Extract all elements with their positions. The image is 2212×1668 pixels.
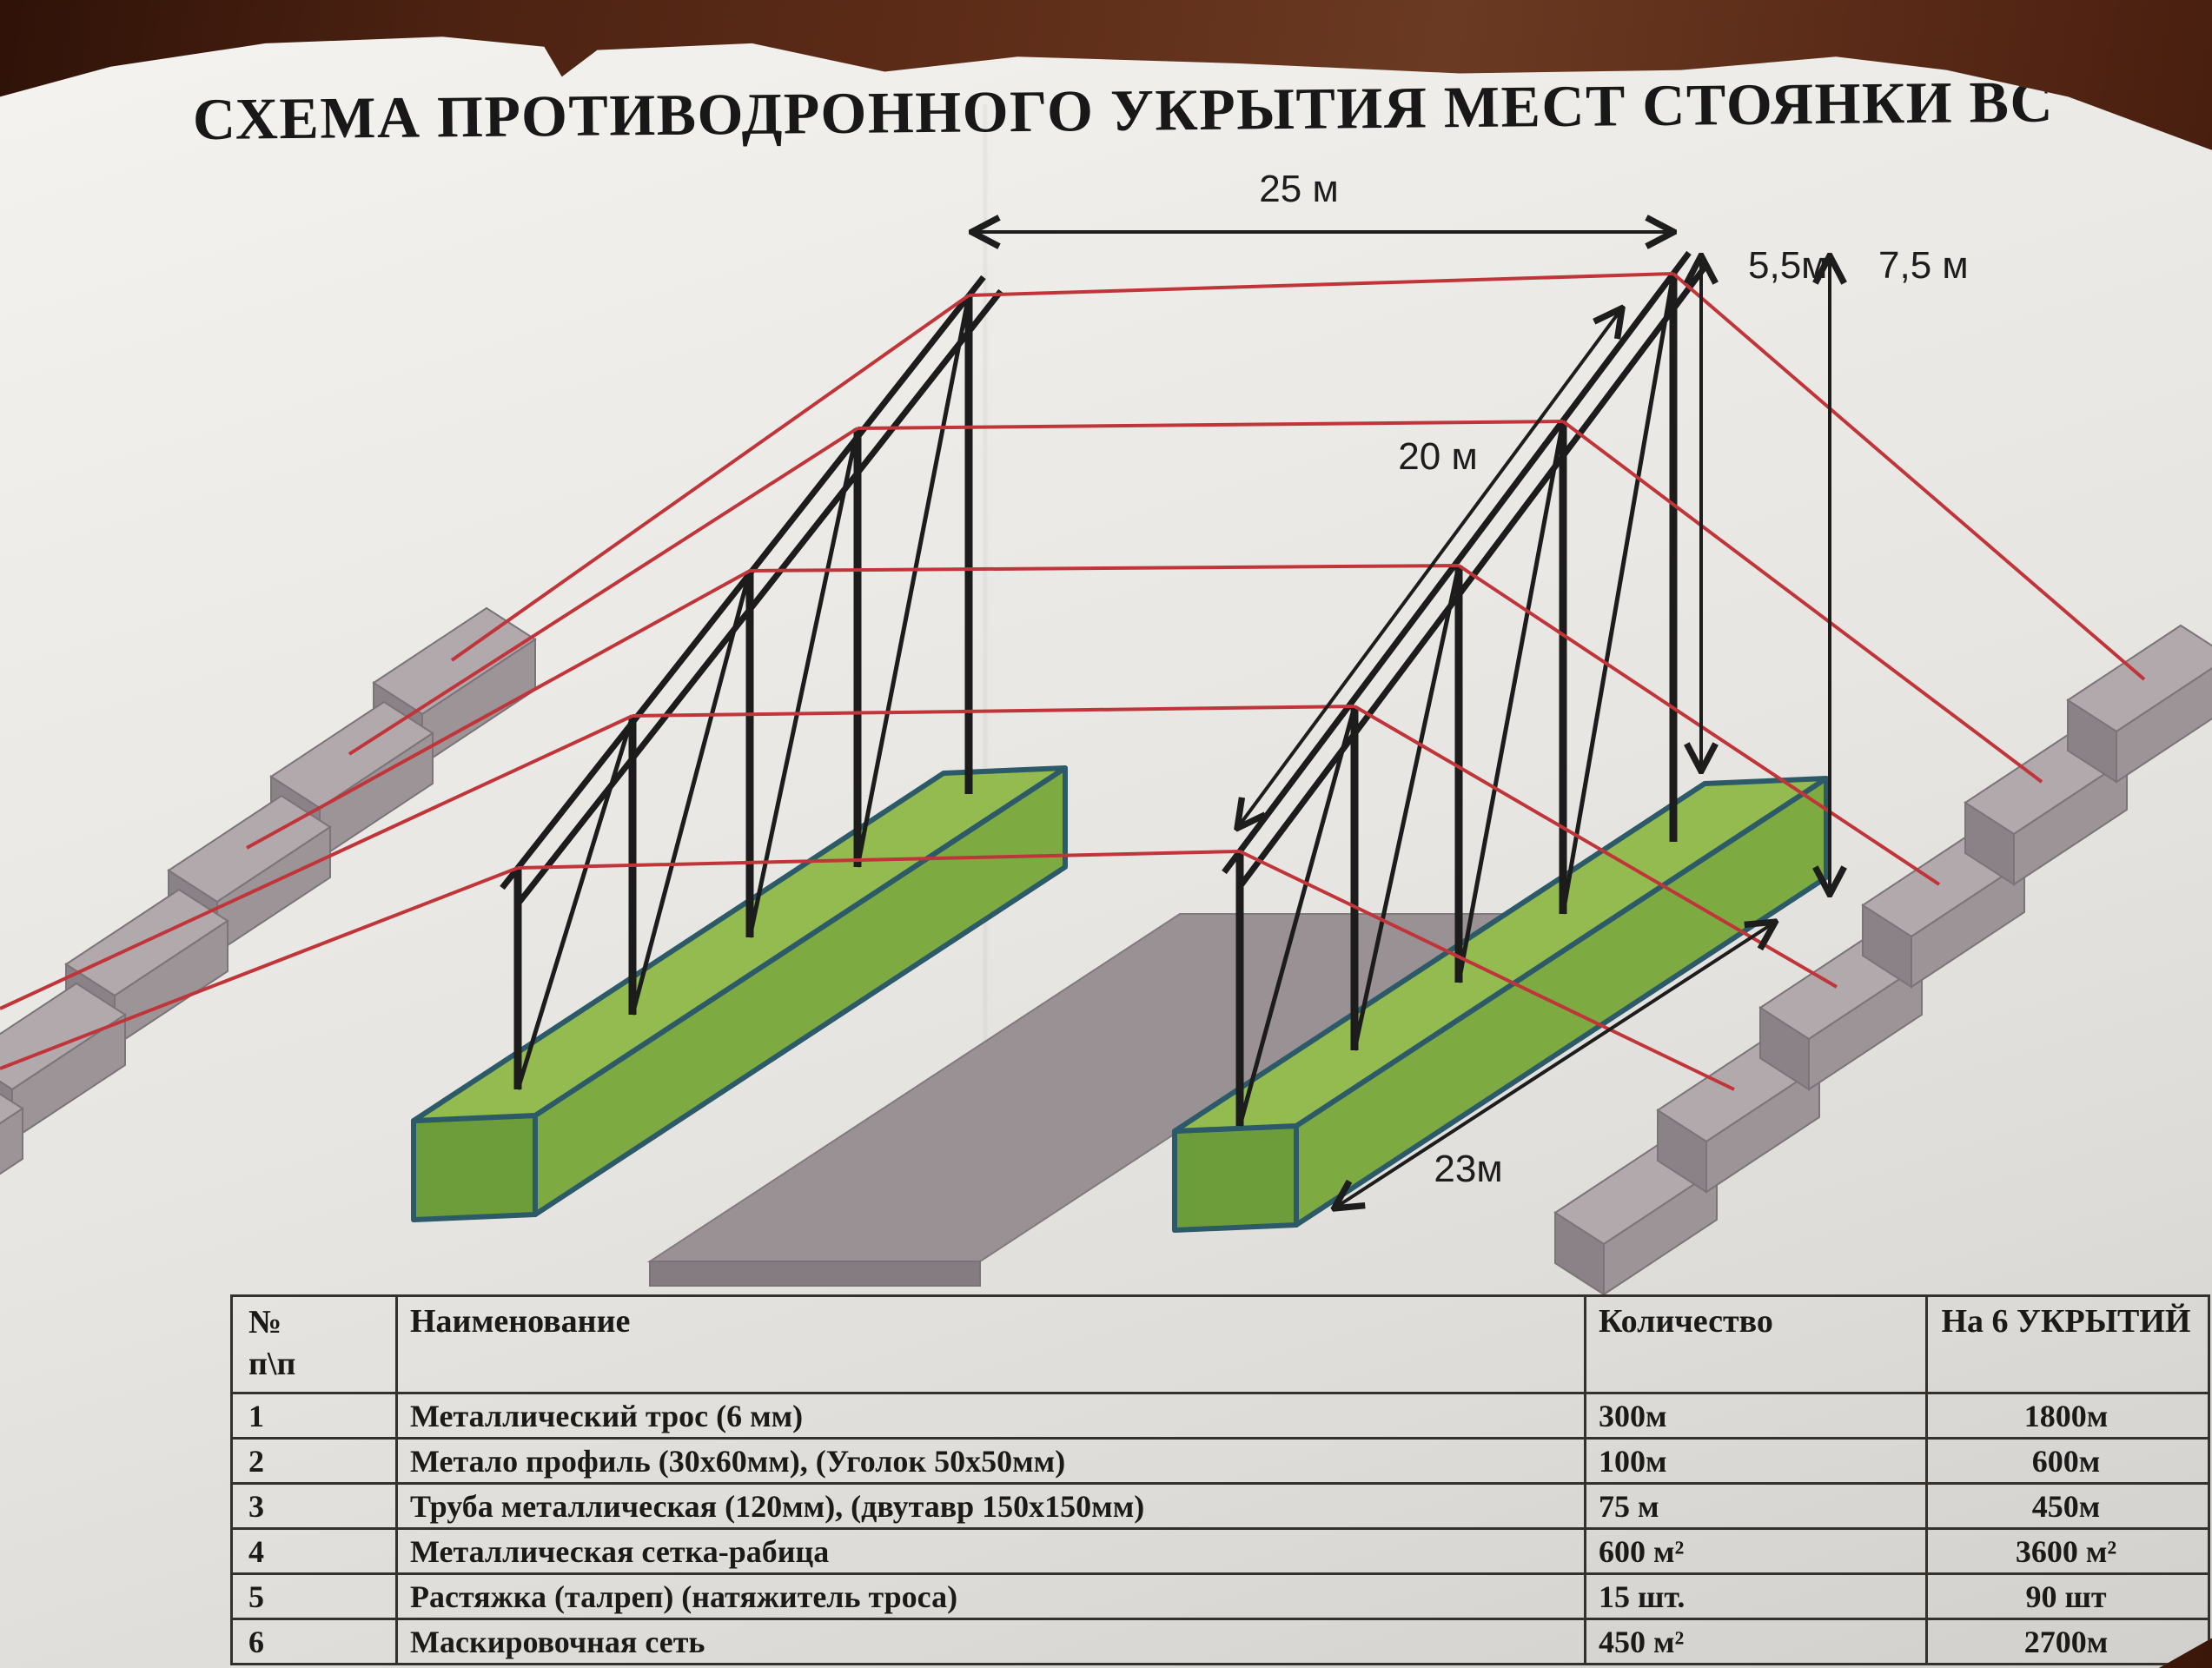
cell-qty: 75 м [1586, 1484, 1927, 1529]
cell-num: 2 [232, 1439, 397, 1484]
cell-qty: 600 м² [1586, 1529, 1927, 1574]
cell-name: Металлический трос (6 мм) [397, 1393, 1586, 1439]
col-header-name: Наименование [397, 1296, 1586, 1393]
dimension-label-7-5m: 7,5 м [1878, 244, 1969, 287]
cell-name: Труба металлическая (120мм), (двутавр 15… [397, 1484, 1586, 1529]
paper-sheet: СХЕМА ПРОТИВОДРОННОГО УКРЫТИЯ МЕСТ СТОЯН… [0, 0, 2212, 1668]
table-row: 2 Метало профиль (30х60мм), (Уголок 50х5… [232, 1439, 2209, 1484]
cell-qty: 100м [1586, 1439, 1927, 1484]
cell-total: 90 шт [1927, 1574, 2209, 1619]
cell-total: 2700м [1927, 1619, 2209, 1665]
col-header-num: № п\п [232, 1296, 397, 1393]
photo-of-diagram: { "title": "СХЕМА ПРОТИВОДРОННОГО УКРЫТИ… [0, 0, 2212, 1668]
dimension-label-5-5m: 5,5м [1748, 244, 1827, 287]
dimension-label-20m: 20 м [1398, 435, 1477, 478]
cell-name: Металлическая сетка-рабица [397, 1529, 1586, 1574]
cell-num: 4 [232, 1529, 397, 1574]
dimension-total-height-7-5m: 7,5 м [1830, 244, 1969, 893]
cell-name: Растяжка (талреп) (натяжитель троса) [397, 1574, 1586, 1619]
table-row: 1 Металлический трос (6 мм) 300м 1800м [232, 1393, 2209, 1439]
cell-total: 600м [1927, 1439, 2209, 1484]
cell-total: 3600 м² [1927, 1529, 2209, 1574]
table-row: 5 Растяжка (талреп) (натяжитель троса) 1… [232, 1574, 2209, 1619]
col-header-qty: Количество [1586, 1296, 1927, 1393]
dimension-pole-height-5-5m: 5,5м [1701, 244, 1827, 770]
cell-qty: 450 м² [1586, 1619, 1927, 1665]
table-row: 6 Маскировочная сеть 450 м² 2700м [232, 1619, 2209, 1665]
concrete-block [2068, 625, 2212, 782]
cell-num: 5 [232, 1574, 397, 1619]
cell-num: 1 [232, 1393, 397, 1439]
cell-qty: 15 шт. [1586, 1574, 1927, 1619]
cell-qty: 300м [1586, 1393, 1927, 1439]
cell-total: 1800м [1927, 1393, 2209, 1439]
dimension-label-23m: 23м [1434, 1148, 1502, 1190]
table-row: 4 Металлическая сетка-рабица 600 м² 3600… [232, 1529, 2209, 1574]
cell-name: Маскировочная сеть [397, 1619, 1586, 1665]
cell-num: 6 [232, 1619, 397, 1665]
dimension-label-25m: 25 м [1259, 168, 1338, 210]
cell-total: 450м [1927, 1484, 2209, 1529]
materials-table: № п\п Наименование Количество На 6 УКРЫТ… [230, 1294, 2210, 1665]
table-header-row: № п\п Наименование Количество На 6 УКРЫТ… [232, 1296, 2209, 1393]
table-row: 3 Труба металлическая (120мм), (двутавр … [232, 1484, 2209, 1529]
dimension-width-25m: 25 м [973, 168, 1672, 232]
cell-num: 3 [232, 1484, 397, 1529]
col-header-total: На 6 УКРЫТИЙ [1927, 1296, 2209, 1393]
span-cables [518, 274, 1673, 868]
cell-name: Метало профиль (30х60мм), (Уголок 50х50м… [397, 1439, 1586, 1484]
